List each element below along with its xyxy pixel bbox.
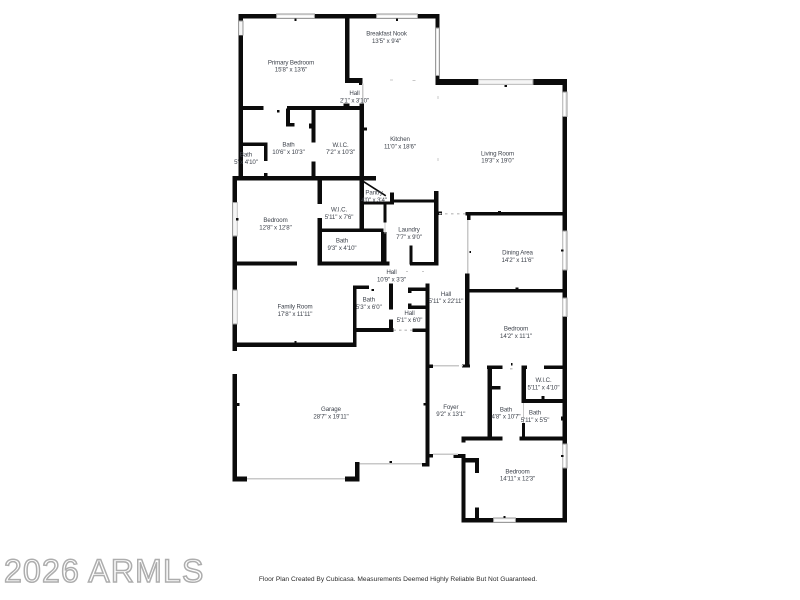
svg-text:2026 ARMLS: 2026 ARMLS: [4, 553, 205, 589]
svg-text:Bedroom: Bedroom: [504, 326, 528, 333]
svg-text:Bath: Bath: [363, 297, 376, 304]
svg-text:14'11" x 12'3": 14'11" x 12'3": [500, 476, 535, 483]
svg-text:2'1" x 3'10": 2'1" x 3'10": [340, 97, 369, 104]
svg-text:5'11" x 5'5": 5'11" x 5'5": [521, 417, 550, 424]
svg-text:Floor Plan Created By Cubicasa: Floor Plan Created By Cubicasa. Measurem…: [259, 576, 537, 583]
svg-text:W.I.C.: W.I.C.: [332, 142, 349, 149]
svg-text:14'2" x 11'6": 14'2" x 11'6": [502, 257, 534, 264]
svg-text:Bedroom: Bedroom: [505, 468, 529, 475]
svg-text:W.I.C.: W.I.C.: [535, 377, 552, 384]
svg-text:9'3" x 4'10": 9'3" x 4'10": [327, 245, 356, 252]
svg-text:Hall: Hall: [349, 90, 359, 97]
svg-text:Bath: Bath: [500, 406, 513, 413]
svg-text:Kitchen: Kitchen: [390, 136, 410, 143]
svg-text:Dining Area: Dining Area: [502, 250, 533, 257]
svg-text:14'2" x 11'1": 14'2" x 11'1": [500, 333, 532, 340]
svg-text:7'2" x 10'3": 7'2" x 10'3": [326, 149, 355, 156]
svg-text:W.I.C.: W.I.C.: [331, 207, 348, 214]
svg-text:5'1" x 6'0": 5'1" x 6'0": [397, 317, 423, 324]
svg-text:Bath: Bath: [336, 238, 349, 245]
svg-text:19'3" x 19'0": 19'3" x 19'0": [481, 158, 513, 165]
svg-text:Pantry: Pantry: [365, 190, 383, 197]
svg-text:5'11" x 22'11": 5'11" x 22'11": [429, 298, 464, 305]
svg-text:Hall: Hall: [441, 291, 451, 298]
svg-text:Bath: Bath: [282, 142, 295, 149]
svg-text:5'11" x 7'6": 5'11" x 7'6": [325, 214, 354, 221]
svg-text:Bath: Bath: [529, 410, 542, 417]
svg-text:Garage: Garage: [321, 406, 342, 413]
svg-text:Hall: Hall: [386, 269, 396, 276]
svg-text:9'2" x 13'1": 9'2" x 13'1": [436, 411, 465, 418]
svg-text:15'8" x 13'6": 15'8" x 13'6": [275, 67, 307, 74]
svg-text:13'5" x 9'4": 13'5" x 9'4": [372, 38, 401, 45]
svg-text:12'8" x 12'8": 12'8" x 12'8": [259, 224, 291, 231]
svg-text:Bath: Bath: [240, 152, 253, 159]
svg-text:5' x 4'10": 5' x 4'10": [234, 159, 258, 166]
svg-text:17'8" x 11'11": 17'8" x 11'11": [278, 311, 313, 318]
svg-text:Hall: Hall: [404, 310, 414, 317]
svg-text:5'11" x 4'10": 5'11" x 4'10": [528, 384, 560, 391]
svg-text:Bedroom: Bedroom: [263, 217, 287, 224]
svg-text:7'7" x 9'0": 7'7" x 9'0": [396, 234, 422, 241]
svg-text:Foyer: Foyer: [443, 404, 458, 411]
svg-text:Primary Bedroom: Primary Bedroom: [268, 59, 314, 66]
svg-text:Living Room: Living Room: [481, 150, 514, 157]
svg-text:10'9" x 3'3": 10'9" x 3'3": [377, 276, 406, 283]
svg-text:Family Room: Family Room: [277, 304, 312, 311]
svg-text:4'8" x 10'7": 4'8" x 10'7": [491, 414, 520, 421]
svg-text:Laundry: Laundry: [398, 227, 421, 234]
svg-text:4'0" x 3'4": 4'0" x 3'4": [361, 197, 387, 204]
svg-text:5'3" x 6'0": 5'3" x 6'0": [356, 304, 382, 311]
svg-text:Breakfast Nook: Breakfast Nook: [366, 31, 408, 38]
svg-text:11'0" x 18'6": 11'0" x 18'6": [384, 143, 416, 150]
svg-text:10'6" x 10'3": 10'6" x 10'3": [272, 149, 304, 156]
svg-text:28'7" x 19'11": 28'7" x 19'11": [313, 413, 348, 420]
